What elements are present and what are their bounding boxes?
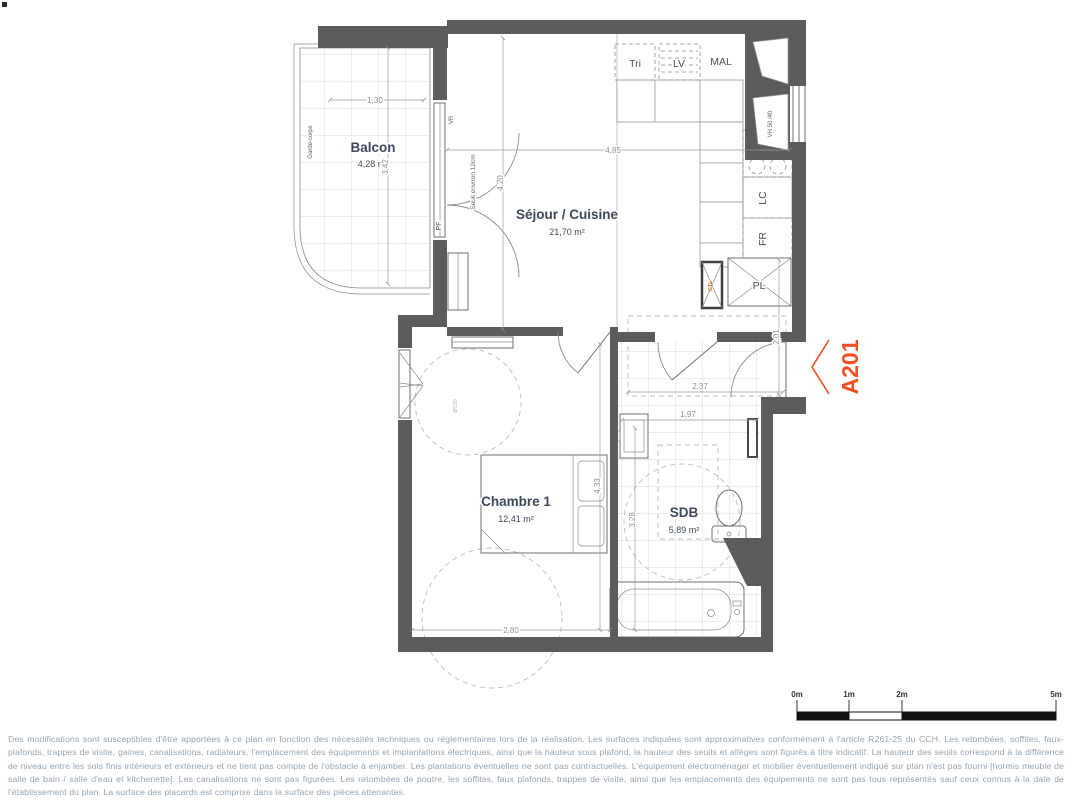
scale-bar-black <box>797 712 1056 720</box>
scale-tick-1m: 1m <box>843 690 855 699</box>
bathroom-fixtures <box>610 341 761 637</box>
dim-sdb-width: 1,97 <box>680 410 696 419</box>
fixture-label-gtl: GTL <box>708 280 714 292</box>
fixture-label-fr: FR <box>757 232 769 246</box>
label-seuil: Seuil environ 12cm <box>470 154 477 209</box>
scale-tick-0m: 0m <box>791 690 803 699</box>
corner-artifact <box>2 2 7 7</box>
dim-sdb-height: 3,28 <box>628 512 637 528</box>
room-label-balcon: Balcon <box>350 140 395 155</box>
dim-chambre-width: 2,80 <box>503 626 519 635</box>
scale-tick-5m: 5m <box>1050 690 1062 699</box>
dim-sejour-height: 4,20 <box>496 175 505 191</box>
turning-circle-chambre-2 <box>422 548 562 688</box>
floor-plan-page: Balcon 4,28 m² Séjour / Cuisine 21,70 m²… <box>0 0 1072 800</box>
scale-bar-white <box>849 712 902 720</box>
stove-burner <box>770 158 786 174</box>
disclaimer-text: Des modifications sont susceptibles d'êt… <box>8 733 1064 799</box>
sdb-floor-tiles <box>618 341 761 637</box>
fixture-label-pf: PF <box>436 222 443 231</box>
dim-balcon-width: 1,30 <box>367 96 383 105</box>
chambre-door-swing <box>558 332 578 373</box>
room-area-sdb: 5,89 m² <box>669 525 700 535</box>
dim-sejour-width: 4,85 <box>605 146 621 155</box>
floor-plan-drawing: Balcon 4,28 m² Séjour / Cuisine 21,70 m²… <box>0 0 1072 800</box>
room-label-chambre: Chambre 1 <box>481 494 551 509</box>
dim-balcon-height: 3,42 <box>381 159 390 175</box>
dim-hall-width: 2,37 <box>692 382 708 391</box>
room-area-sejour: 21,70 m² <box>549 227 585 237</box>
fixture-label-vr: VR <box>449 115 455 124</box>
towel-radiator <box>748 419 757 457</box>
label-garde-corps: Garde-corps <box>308 125 314 158</box>
kitchen-counter <box>617 80 743 122</box>
radiator-chambre <box>452 337 513 348</box>
unit-label: A201 <box>812 339 863 394</box>
bed-fold-line <box>481 529 505 553</box>
fixture-label-vh: VH 50 /40 <box>768 110 774 137</box>
fixture-label-mal: MAL <box>710 56 732 68</box>
unit-chevron-icon <box>812 340 829 394</box>
scale-tick-2m: 2m <box>896 690 908 699</box>
balcony-door-swing-1 <box>447 133 519 205</box>
room-label-sdb: SDB <box>670 505 699 520</box>
kitchen-counter-column <box>700 122 743 267</box>
unit-number: A201 <box>837 339 863 394</box>
room-label-sejour: Séjour / Cuisine <box>516 207 619 222</box>
fixture-label-pl: PL <box>753 280 766 292</box>
fixture-label-lc: LC <box>757 191 769 205</box>
turning-circle-chambre <box>415 349 521 455</box>
room-area-chambre: 12,41 m² <box>498 514 534 524</box>
scale-tick-lines <box>797 700 1056 712</box>
chambre-door-leaf <box>578 332 610 373</box>
fixture-label-lv: LV <box>673 58 685 70</box>
label-turning-circle: Ø150 <box>453 399 459 412</box>
stove-burner <box>749 158 765 174</box>
scale-bar: 0m 1m 2m 5m <box>791 690 1062 720</box>
dim-chambre-height: 4,33 <box>593 478 602 494</box>
dim-entry-height: 2,01 <box>772 329 781 345</box>
balcony <box>294 44 430 294</box>
fixture-label-tri: Tri <box>629 58 641 70</box>
